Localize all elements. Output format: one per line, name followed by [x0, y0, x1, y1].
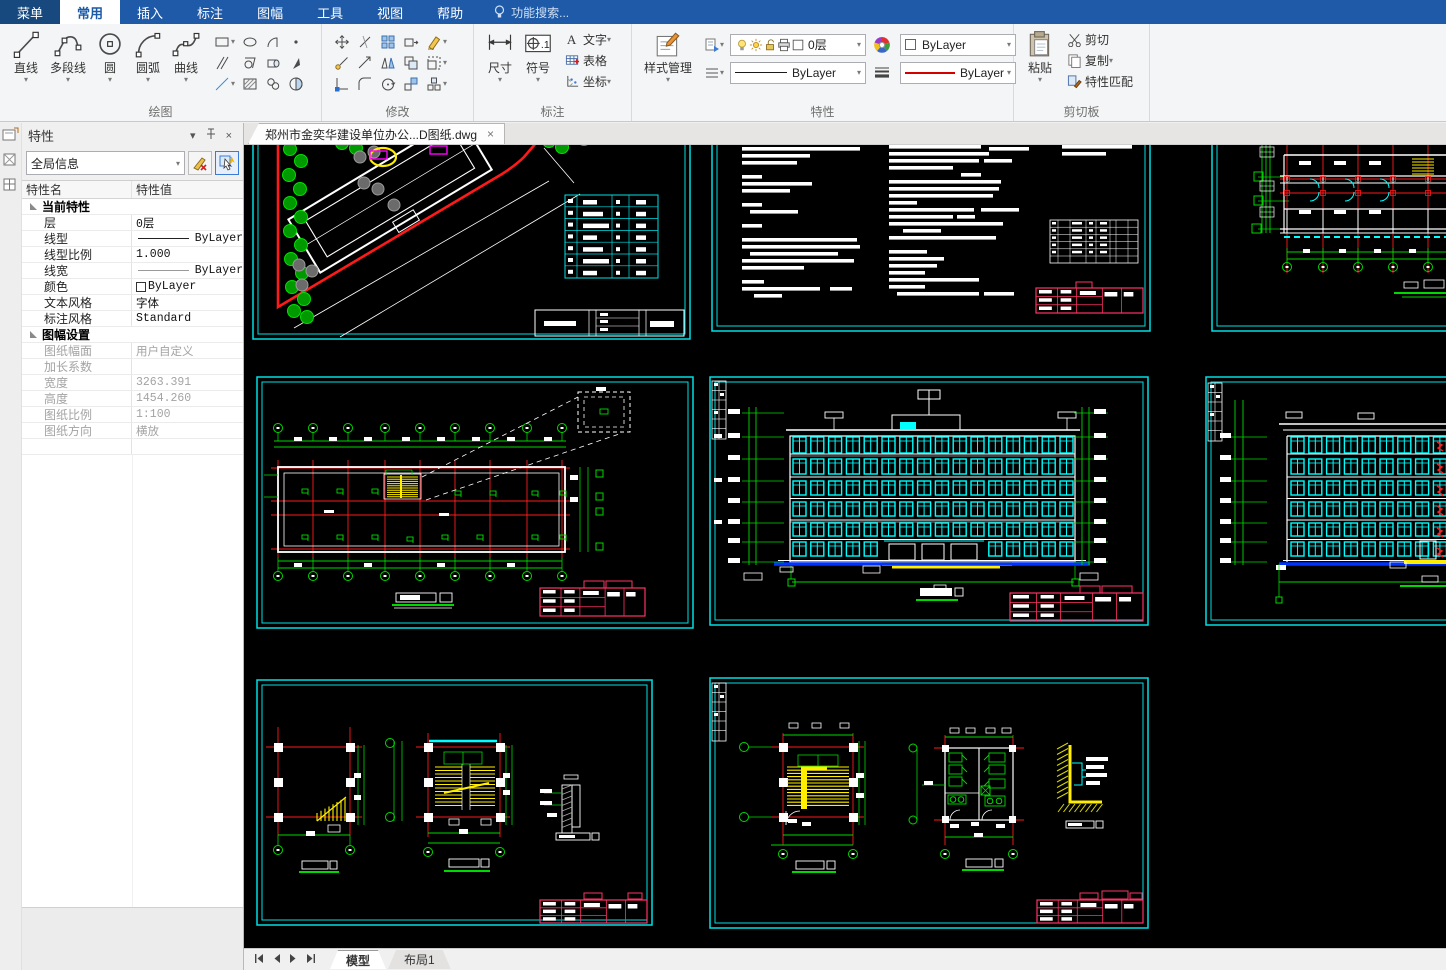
menu-item-帮助[interactable]: 帮助: [420, 0, 480, 24]
ribbon-toolbar: 直线▾多段线▾圆▾圆弧▾曲线▾ ▾▾ 绘图 ▾▾▾ 修改 尺寸▾.1符号▾ A文…: [0, 24, 1446, 122]
sun-icon: [749, 38, 763, 52]
current-lineweight-value: ByLayer: [960, 66, 1004, 80]
explode-icon: [426, 76, 442, 92]
坐标-button[interactable]: 坐标▾: [562, 71, 614, 92]
圆-button[interactable]: 圆▾: [92, 29, 128, 84]
copy-button[interactable]: [332, 54, 352, 72]
point-icon: [288, 34, 304, 50]
曲线-button[interactable]: 曲线▾: [168, 29, 204, 84]
point-button[interactable]: [286, 33, 306, 51]
prop-row-线宽[interactable]: 线宽ByLayer: [22, 263, 243, 279]
color-wheel-icon[interactable]: [871, 36, 893, 54]
sheet-floor-plan-partial: [1212, 145, 1446, 331]
lineweight-sample: [905, 72, 955, 74]
prop-row-线型[interactable]: 线型ByLayer: [22, 231, 243, 247]
current-linetype-value: ByLayer: [792, 66, 836, 80]
group-label-annotate: 标注: [474, 103, 631, 120]
stretch-button[interactable]: [401, 33, 421, 51]
剪切-button[interactable]: 剪切: [1064, 29, 1136, 50]
drawing-canvas[interactable]: [244, 145, 1446, 948]
boundary-icon: [288, 76, 304, 92]
chevron-down-icon: ▾: [184, 76, 188, 83]
style-manager-icon: [654, 30, 682, 58]
sheet-tab-布局1[interactable]: 布局1: [388, 950, 451, 969]
properties-panel: 特性 ▾ × 全局信息 ▾ 特性名特性值当前特性层0层线型ByLayer线型比例…: [22, 123, 244, 970]
符号-button[interactable]: .1符号▾: [520, 29, 556, 84]
prop-name: 图纸幅面: [44, 342, 92, 359]
align-icon: [403, 76, 419, 92]
chevron-down-icon: ▾: [1004, 41, 1011, 48]
特性匹配-button[interactable]: 特性匹配: [1064, 71, 1136, 92]
block-button[interactable]: [263, 75, 283, 93]
button-label: 曲线: [174, 59, 198, 76]
prop-name: 图纸方向: [44, 422, 92, 439]
chevron-down-icon: ▾: [443, 38, 447, 45]
offset-icon: [403, 55, 419, 71]
table-icon: [565, 53, 580, 68]
rotate-icon: [380, 76, 396, 92]
mirror-button[interactable]: [378, 54, 398, 72]
color-bylayer-swatch: [905, 39, 916, 50]
panel-dock-icon[interactable]: [2, 127, 20, 143]
hatch-button[interactable]: [240, 75, 260, 93]
rotate-button[interactable]: [378, 75, 398, 93]
chevron-down-icon: ▾: [108, 76, 112, 83]
panel-pin-icon[interactable]: [201, 128, 221, 143]
cad-application-window: 菜单常用插入标注图幅工具视图帮助功能搜索... 直线▾多段线▾圆▾圆弧▾曲线▾ …: [0, 0, 1446, 970]
prop-row-宽度[interactable]: 宽度3263.391: [22, 375, 243, 391]
document-tab[interactable]: 郑州市金奕华建设单位办公...D图纸.dwg ×: [248, 123, 505, 144]
sheet-stair-details: [257, 680, 652, 925]
block-icon: [265, 76, 281, 92]
表格-button[interactable]: 表格: [562, 50, 614, 71]
current-color-value: ByLayer: [922, 38, 966, 52]
explode-button[interactable]: ▾: [424, 75, 449, 93]
svg-text:A: A: [567, 32, 577, 47]
chevron-down-icon: ▾: [66, 76, 70, 83]
button-label: 符号: [526, 59, 550, 76]
group-label-draw: 绘图: [0, 103, 321, 120]
sheet-tab-模型[interactable]: 模型: [330, 950, 386, 969]
copy-doc-icon: [1067, 53, 1082, 68]
fillet-button[interactable]: [355, 75, 375, 93]
scale-button[interactable]: ▾: [424, 54, 449, 72]
region-icon: [242, 55, 258, 71]
polyline-icon: [54, 30, 82, 58]
circle-icon: [96, 30, 124, 58]
grip-edit-icon: [334, 76, 350, 92]
button-label: 复制: [1085, 52, 1109, 69]
chevron-down-icon: ▾: [1004, 69, 1011, 76]
group-label-modify: 修改: [322, 103, 473, 120]
lengthen-icon: [357, 55, 373, 71]
region-button[interactable]: [240, 54, 260, 72]
button-label: 表格: [583, 52, 607, 69]
chevron-down-icon: ▾: [24, 76, 28, 83]
menu-item-工具[interactable]: 工具: [300, 0, 360, 24]
prop-name: 高度: [44, 390, 68, 407]
grip-edit-button[interactable]: [332, 75, 352, 93]
prop-row-加长系数[interactable]: 加长系数: [22, 359, 243, 375]
layer-select-combo[interactable]: 0层 ▾: [730, 34, 866, 56]
offset-button[interactable]: [401, 54, 421, 72]
lineweight-icon[interactable]: [871, 65, 893, 81]
prop-row-图纸比例[interactable]: 图纸比例1:100: [22, 407, 243, 423]
ellipse-button[interactable]: [240, 33, 260, 51]
color-swatch: [136, 282, 146, 292]
ribbon-group-annotate: 尺寸▾.1符号▾ A文字▾表格坐标▾ 标注: [474, 24, 632, 121]
样式管理-button[interactable]: 样式管理▾: [640, 29, 696, 84]
prop-name: 标注风格: [44, 310, 92, 327]
layer-color-swatch: [791, 38, 805, 52]
document-tab-bar: 郑州市金奕华建设单位办公...D图纸.dwg ×: [244, 123, 1446, 145]
feature-search-label: 功能搜索...: [511, 4, 569, 21]
pick-point-icon: [288, 55, 304, 71]
properties-panel-title: 特性: [28, 126, 54, 145]
fillet-icon: [357, 76, 373, 92]
erase-button[interactable]: ▾: [424, 33, 449, 51]
chevron-down-icon: ▾: [231, 80, 235, 87]
menu-item-标注[interactable]: 标注: [180, 0, 240, 24]
spline-icon: [172, 30, 200, 58]
cad-canvas-drawing: [244, 145, 1446, 948]
section-row-图幅设置[interactable]: 图幅设置: [22, 327, 243, 343]
group-label-clipboard: 剪切板: [1014, 103, 1149, 120]
panel-dropdown-icon[interactable]: ▾: [185, 129, 201, 142]
construction-line-icon: [214, 76, 230, 92]
section-row-当前特性[interactable]: 当前特性: [22, 199, 243, 215]
文字-button[interactable]: A文字▾: [562, 29, 614, 50]
cut-icon: [1067, 32, 1082, 47]
pick-point-button[interactable]: [286, 54, 306, 72]
chevron-down-icon: ▾: [854, 69, 861, 76]
erase-icon: [426, 34, 442, 50]
lightbulb-icon: [494, 5, 505, 20]
prop-name: 图纸比例: [44, 406, 92, 423]
arc-segment-button[interactable]: [263, 33, 283, 51]
sheet-site-plan: [253, 145, 690, 339]
group-label-properties: 特性: [632, 103, 1013, 120]
linetype-sample: [735, 72, 787, 73]
document-close-icon[interactable]: ×: [487, 127, 494, 141]
symbol-icon: .1: [524, 30, 552, 58]
document-title: 郑州市金奕华建设单位办公...D图纸.dwg: [265, 126, 477, 143]
chevron-down-icon: ▾: [536, 76, 540, 83]
sheet-side-elevation-partial: [1206, 377, 1446, 625]
first-sheet-button[interactable]: [250, 954, 269, 966]
collapse-icon[interactable]: [30, 331, 37, 338]
quick-clear-button[interactable]: [188, 151, 212, 175]
layout-tab-bar: 模型布局1: [244, 948, 1446, 970]
chevron-down-icon: ▾: [607, 36, 611, 43]
chevron-down-icon: ▾: [498, 76, 502, 83]
button-label: 圆弧: [136, 59, 160, 76]
dimension-icon: [486, 30, 514, 58]
cylinder-icon: [265, 55, 281, 71]
linetype-sample: [138, 238, 189, 239]
parallel-lines-button[interactable]: [212, 54, 237, 72]
feature-search[interactable]: 功能搜索...: [494, 0, 569, 24]
prop-name: 颜色: [44, 278, 68, 295]
properties-table-empty-area: [22, 455, 243, 908]
prop-name: 加长系数: [44, 358, 92, 375]
prop-row-线型比例[interactable]: 线型比例1.000: [22, 247, 243, 263]
section-title: 当前特性: [42, 198, 90, 215]
尺寸-button[interactable]: 尺寸▾: [482, 29, 518, 84]
menu-item-图幅[interactable]: 图幅: [240, 0, 300, 24]
linetype-manager-button[interactable]: ▾: [702, 65, 726, 81]
粘贴-button[interactable]: 粘贴▾: [1022, 29, 1058, 84]
scale-icon: [426, 55, 442, 71]
sheet-front-elevation: [710, 377, 1148, 625]
button-label: 尺寸: [488, 59, 512, 76]
sheet-roof-plan: [257, 377, 693, 628]
docked-panel-strip: [0, 123, 22, 970]
多段线-button[interactable]: 多段线▾: [46, 29, 90, 84]
printer-icon: [777, 38, 791, 52]
value-header: 特性值: [136, 181, 172, 198]
coordinate-icon: [565, 74, 580, 89]
menu-bar: 菜单常用插入标注图幅工具视图帮助功能搜索...: [0, 0, 1446, 24]
chevron-down-icon: ▾: [146, 76, 150, 83]
圆弧-button[interactable]: 圆弧▾: [130, 29, 166, 84]
break-button[interactable]: [355, 33, 375, 51]
button-label: 特性匹配: [1085, 73, 1133, 90]
scope-select-combo[interactable]: 全局信息 ▾: [26, 151, 185, 175]
prop-name: 宽度: [44, 374, 68, 391]
chevron-down-icon: ▾: [1038, 76, 1042, 83]
button-label: 粘贴: [1028, 59, 1052, 76]
menu-item-插入[interactable]: 插入: [120, 0, 180, 24]
panel-close-icon[interactable]: ×: [221, 130, 237, 142]
prop-name: 线型比例: [44, 246, 92, 263]
chevron-down-icon: ▾: [854, 41, 861, 48]
prop-row-高度[interactable]: 高度1454.260: [22, 391, 243, 407]
move-button[interactable]: [332, 33, 352, 51]
chevron-down-icon: ▾: [607, 78, 611, 85]
chevron-down-icon: ▾: [443, 80, 447, 87]
next-sheet-button[interactable]: [285, 954, 301, 966]
line-icon: [12, 30, 40, 58]
panel-footer: [22, 908, 243, 970]
name-header: 特性名: [26, 181, 62, 198]
break-icon: [357, 34, 373, 50]
text-icon: A: [565, 32, 580, 47]
menu-item-视图[interactable]: 视图: [360, 0, 420, 24]
layer-manager-button[interactable]: ▾: [702, 37, 726, 53]
ribbon-group-modify: ▾▾▾ 修改: [322, 24, 474, 121]
layer-panel-icon[interactable]: [2, 152, 20, 168]
ribbon-group-properties: 样式管理▾ ▾ 0层 ▾ ByL: [632, 24, 1014, 121]
prop-name: 文本风格: [44, 294, 92, 311]
array-button[interactable]: [378, 33, 398, 51]
arc-segment-icon: [265, 34, 281, 50]
collapse-icon[interactable]: [30, 203, 37, 210]
button-label: 直线: [14, 59, 38, 76]
sheet-design-notes: [712, 145, 1150, 331]
chevron-down-icon: ▾: [231, 38, 235, 45]
复制-button[interactable]: 复制▾: [1064, 50, 1136, 71]
直线-button[interactable]: 直线▾: [8, 29, 44, 84]
quick-select-button[interactable]: [215, 151, 239, 175]
chevron-down-icon: ▾: [1109, 57, 1113, 64]
prop-row-图纸幅面[interactable]: 图纸幅面用户自定义: [22, 343, 243, 359]
lineweight-sample: [138, 270, 189, 271]
match-props-icon: [1067, 74, 1082, 89]
hatch-icon: [242, 76, 258, 92]
chevron-down-icon: ▾: [173, 160, 180, 167]
sheet-panel-icon[interactable]: [2, 177, 20, 193]
prop-row-颜色[interactable]: 颜色ByLayer: [22, 279, 243, 295]
mirror-icon: [380, 55, 396, 71]
prop-row-文本风格[interactable]: 文本风格字体: [22, 295, 243, 311]
button-label: 文字: [583, 31, 607, 48]
array-icon: [380, 34, 396, 50]
empty-row[interactable]: [22, 439, 243, 455]
prop-row-图纸方向[interactable]: 图纸方向横放: [22, 423, 243, 439]
prop-name: 线宽: [44, 262, 68, 279]
ribbon-group-draw: 直线▾多段线▾圆▾圆弧▾曲线▾ ▾▾ 绘图: [0, 24, 322, 121]
properties-table: 特性名特性值当前特性层0层线型ByLayer线型比例1.000线宽ByLayer…: [22, 180, 243, 455]
rectangle-button[interactable]: ▾: [212, 33, 237, 51]
lengthen-button[interactable]: [355, 54, 375, 72]
current-layer-value: 0层: [808, 36, 827, 53]
paste-icon: [1026, 30, 1054, 58]
construction-line-button[interactable]: ▾: [212, 75, 237, 93]
move-icon: [334, 34, 350, 50]
section-title: 图幅设置: [42, 326, 90, 343]
chevron-down-icon: ▾: [666, 76, 670, 83]
rectangle-icon: [214, 34, 230, 50]
color-select-combo[interactable]: ByLayer ▾: [900, 34, 1016, 56]
prop-name: 层: [44, 214, 56, 231]
scope-value: 全局信息: [31, 155, 79, 172]
arc-icon: [134, 30, 162, 58]
button-label: 多段线: [50, 59, 86, 76]
prev-sheet-button[interactable]: [269, 954, 285, 966]
button-label: 坐标: [583, 73, 607, 90]
lineweight-select-combo[interactable]: ByLayer ▾: [900, 62, 1016, 84]
parallel-lines-icon: [214, 55, 230, 71]
button-label: 样式管理: [644, 59, 692, 76]
ellipse-icon: [242, 34, 258, 50]
menu-item-常用[interactable]: 常用: [60, 0, 120, 24]
prop-row-标注风格[interactable]: 标注风格Standard: [22, 311, 243, 327]
sheet-stair-and-toilet-details: [710, 678, 1148, 928]
menu-item-菜单[interactable]: 菜单: [0, 0, 60, 24]
button-label: 剪切: [1085, 31, 1109, 48]
align-button[interactable]: [401, 75, 421, 93]
prop-name: 线型: [44, 230, 68, 247]
prop-row-层[interactable]: 层0层: [22, 215, 243, 231]
cylinder-button[interactable]: [263, 54, 283, 72]
copy-icon: [334, 55, 350, 71]
boundary-button[interactable]: [286, 75, 306, 93]
table-header-row[interactable]: 特性名特性值: [22, 181, 243, 199]
chevron-down-icon: ▾: [443, 59, 447, 66]
unlock-icon: [763, 38, 777, 52]
bulb-icon: [735, 38, 749, 52]
svg-text:.1: .1: [541, 39, 550, 51]
stretch-icon: [403, 34, 419, 50]
last-sheet-button[interactable]: [301, 954, 320, 966]
button-label: 圆: [104, 59, 116, 76]
ribbon-group-clipboard: 粘贴▾ 剪切复制▾特性匹配 剪切板: [1014, 24, 1150, 121]
linetype-select-combo[interactable]: ByLayer ▾: [730, 62, 866, 84]
